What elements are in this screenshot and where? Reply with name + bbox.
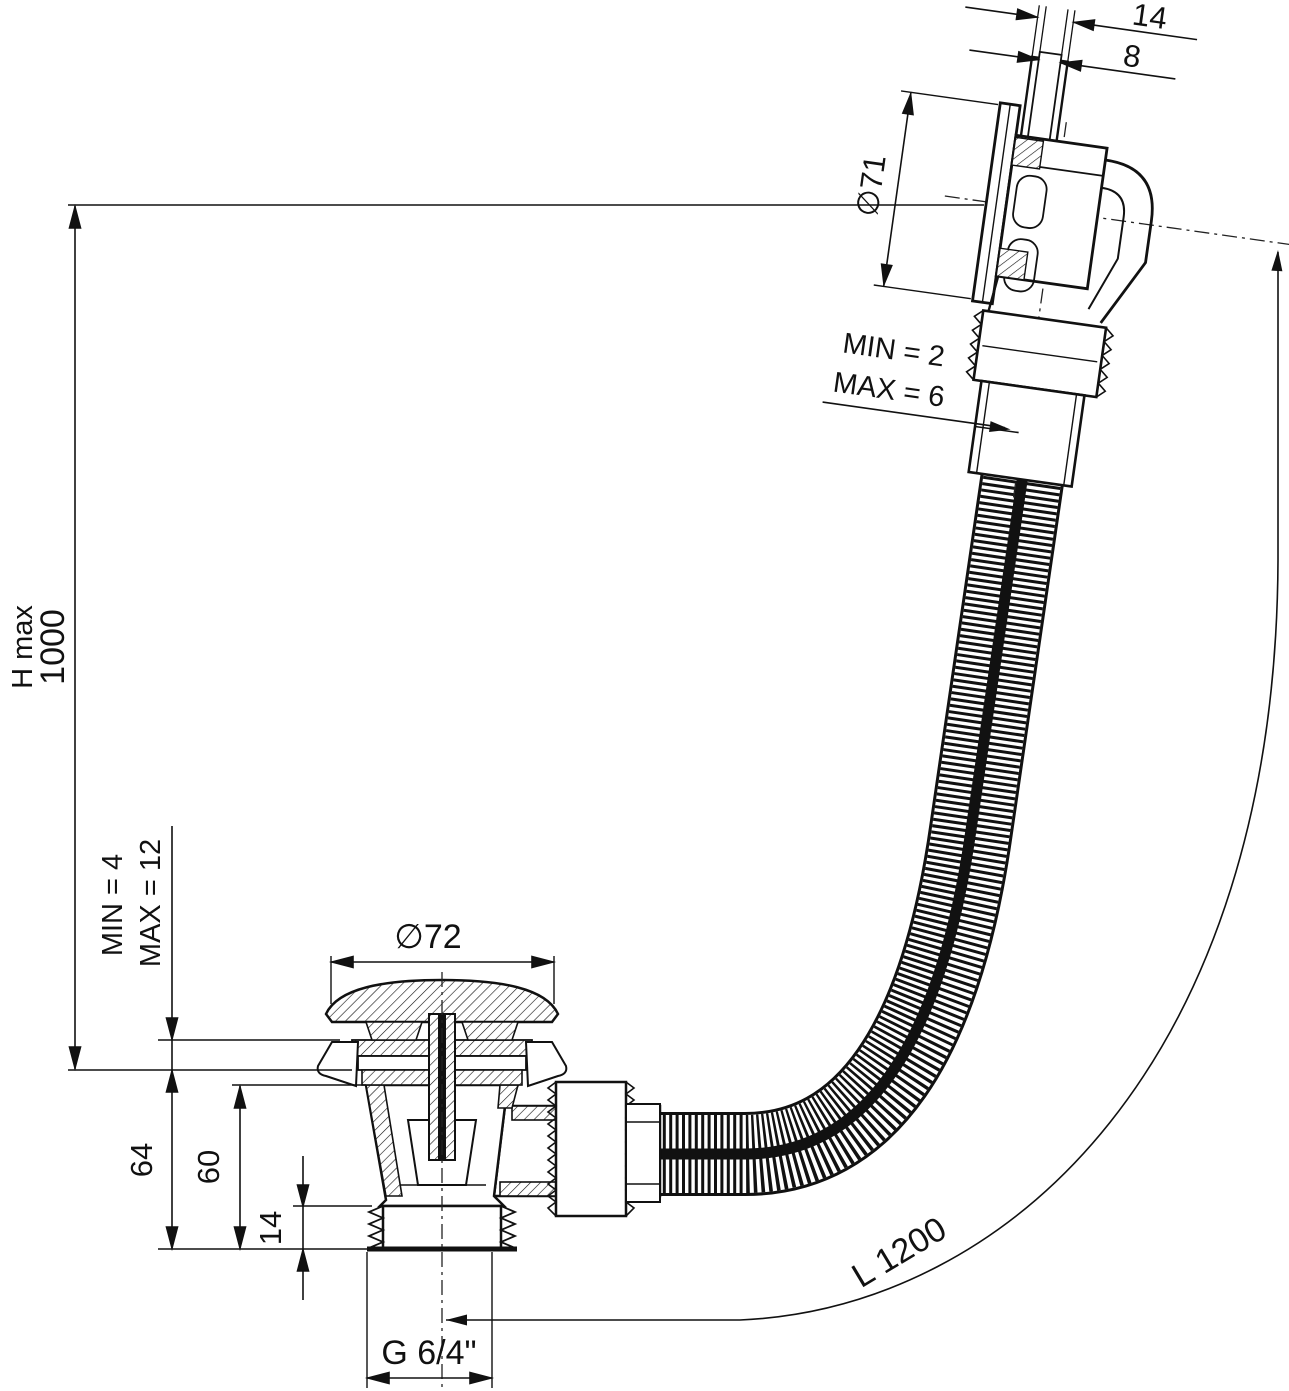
clamp-screw-upper	[1012, 137, 1044, 169]
waste-body-height-label: 60	[191, 1150, 226, 1184]
thread-size-label: G 6/4"	[381, 1334, 476, 1372]
cap-support-right	[462, 1022, 518, 1040]
plug-diameter-label: ∅72	[394, 918, 461, 956]
cap-support-left	[366, 1022, 422, 1040]
flexible-hose	[650, 440, 1028, 1154]
thread-right	[501, 1206, 515, 1248]
clamp-screw-lower	[996, 248, 1028, 280]
drawing-page: L 1200	[0, 0, 1289, 1391]
hose-length-label: L 1200	[846, 1210, 954, 1295]
body-wall-right	[498, 1085, 518, 1108]
waste-assembly	[318, 980, 660, 1249]
arrowhead	[1271, 250, 1283, 272]
tube-outer-label: 14	[1130, 0, 1169, 36]
flange-wing-left	[318, 1042, 358, 1086]
hose-tail-stub	[626, 1104, 660, 1202]
overflow-clamp-max-label: MAX = 6	[831, 367, 946, 414]
face-diameter-dimension: ∅71	[840, 86, 998, 298]
waste-clamp-min-label: MIN = 4	[97, 854, 129, 956]
waste-clamp-max-label: MAX = 12	[135, 839, 167, 967]
technical-drawing-canvas: L 1200	[0, 0, 1289, 1391]
arrowhead	[446, 1315, 467, 1326]
waste-thread-length-label: 14	[253, 1211, 288, 1245]
overflow-tailpipe	[969, 381, 1085, 487]
flange-wing-right	[526, 1042, 566, 1086]
tube-inner-label: 8	[1121, 38, 1143, 75]
hose-union-nut	[556, 1082, 626, 1216]
tube-outer-dimension: 14	[965, 0, 1202, 45]
face-diameter-label: ∅71	[849, 153, 892, 219]
overflow-assembly: 14 8	[813, 0, 1289, 536]
waste-total-height-label: 64	[124, 1143, 159, 1177]
height-value: 1000	[34, 609, 72, 685]
overflow-clamp-min-label: MIN = 2	[841, 328, 947, 374]
thread-left	[369, 1206, 383, 1248]
